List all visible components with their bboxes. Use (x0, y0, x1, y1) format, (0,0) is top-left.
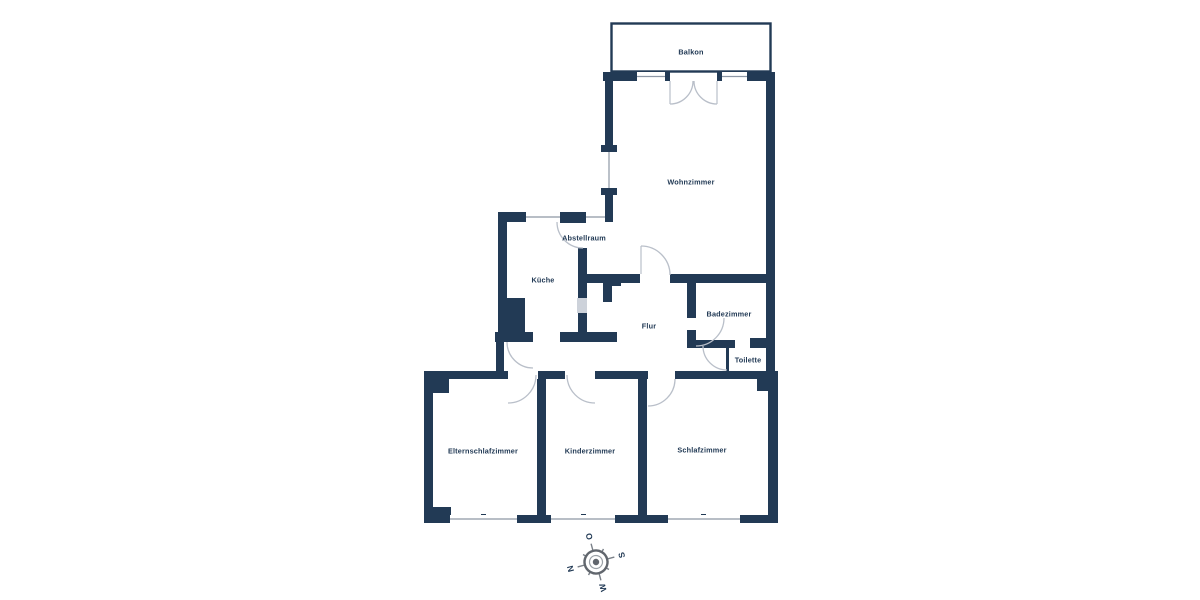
doors (507, 81, 727, 406)
room-label-elternschlafzimmer: Elternschlafzimmer (448, 447, 518, 456)
toilet-door-arc (703, 346, 727, 370)
kitchen-door-arc (507, 342, 533, 368)
floorplan-drawing: N O S W (0, 0, 1200, 600)
balcony-door-arc-left (670, 81, 693, 104)
kitchen-pillar (507, 298, 525, 332)
compass-letter-o: O (583, 532, 594, 541)
kitchen-hatch (577, 298, 587, 313)
balcony-door-arc-right (694, 81, 717, 104)
compass-letter-s: S (616, 551, 627, 559)
livingroom-door-arc (641, 246, 670, 275)
compass-letter-n: N (565, 565, 576, 574)
room-label-kueche: Küche (531, 276, 554, 285)
room-label-flur: Flur (642, 322, 656, 331)
kids-room-door-arc (567, 375, 595, 403)
compass-rose: N O S W (558, 525, 635, 600)
toilet-door-leaf (726, 348, 729, 371)
room-label-balkon: Balkon (678, 48, 703, 57)
parents-bedroom-door-arc (508, 375, 536, 403)
bedroom-door-arc (648, 379, 675, 406)
room-label-kinderzimmer: Kinderzimmer (565, 447, 615, 456)
room-label-schlafzimmer: Schlafzimmer (677, 446, 726, 455)
room-label-badezimmer: Badezimmer (707, 310, 752, 319)
compass-letter-w: W (597, 581, 609, 592)
room-label-toilette: Toilette (735, 356, 762, 365)
floorplan-page: N O S W Balkon Wohnzimmer Abstellraum Kü… (0, 0, 1200, 600)
room-label-wohnzimmer: Wohnzimmer (667, 178, 714, 187)
room-label-abstellraum: Abstellraum (562, 234, 606, 243)
